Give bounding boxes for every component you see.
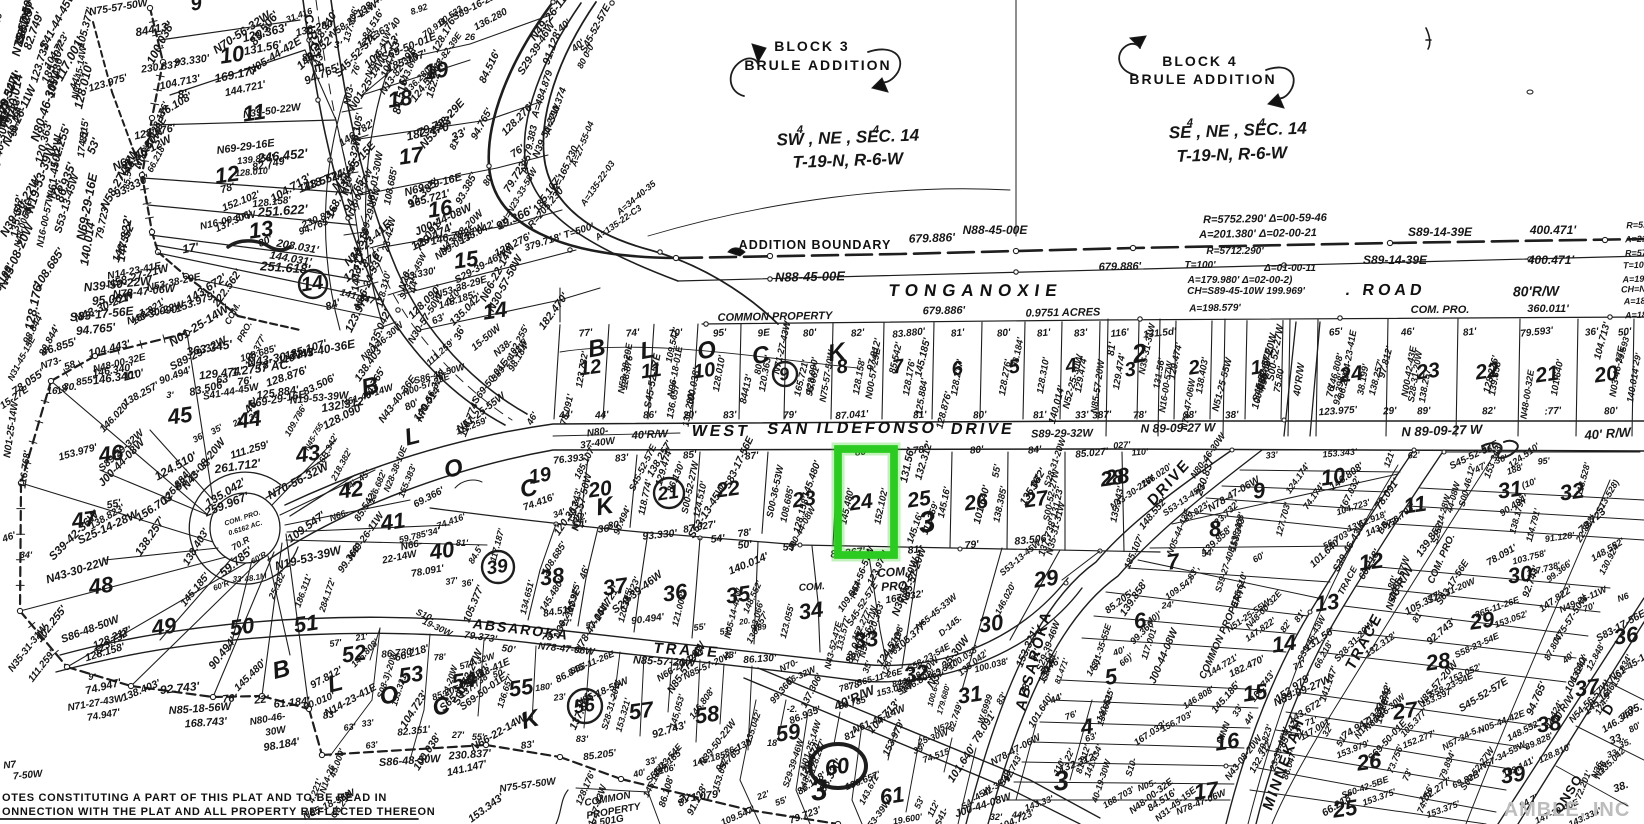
svg-text:4: 4 bbox=[1258, 117, 1266, 129]
svg-text:83': 83' bbox=[723, 410, 738, 422]
svg-text:COMMON PROPERTY: COMMON PROPERTY bbox=[718, 310, 835, 324]
svg-text:T-19-N, R-6-W: T-19-N, R-6-W bbox=[1176, 143, 1289, 166]
svg-text:33': 33' bbox=[1075, 410, 1090, 422]
svg-text:24': 24' bbox=[1160, 599, 1175, 611]
svg-text:CH=N7: CH=N7 bbox=[1621, 283, 1644, 294]
svg-text:82': 82' bbox=[850, 327, 865, 339]
svg-text:22': 22' bbox=[253, 693, 270, 707]
svg-text::77': :77' bbox=[1544, 405, 1562, 417]
svg-text:49: 49 bbox=[149, 612, 178, 640]
svg-text:BRULE ADDITION: BRULE ADDITION bbox=[744, 57, 891, 73]
svg-text:80': 80' bbox=[802, 327, 817, 339]
svg-text:81': 81' bbox=[1462, 326, 1477, 338]
svg-text:95': 95' bbox=[1537, 455, 1551, 466]
svg-text:83': 83' bbox=[1073, 327, 1088, 339]
svg-text:83': 83' bbox=[614, 452, 629, 464]
svg-text:9E: 9E bbox=[757, 327, 771, 339]
svg-text:A=201.380' Δ=02-00-21: A=201.380' Δ=02-00-21 bbox=[1198, 227, 1317, 241]
svg-text:79': 79' bbox=[964, 538, 980, 551]
svg-text:T=100: T=100 bbox=[1623, 260, 1644, 271]
svg-text:BLOCK 3: BLOCK 3 bbox=[774, 38, 849, 54]
svg-text:81': 81' bbox=[1106, 341, 1119, 357]
svg-text:84': 84' bbox=[1027, 444, 1042, 456]
svg-text:400.471': 400.471' bbox=[1529, 223, 1577, 237]
svg-text:85': 85' bbox=[682, 449, 697, 461]
svg-text:N 89-09-27 W: N 89-09-27 W bbox=[1401, 422, 1484, 440]
svg-text:SAN: SAN bbox=[766, 420, 812, 438]
svg-text:R=5752.290' Δ=00-59-46: R=5752.290' Δ=00-59-46 bbox=[1203, 212, 1328, 226]
svg-text:A=21: A=21 bbox=[1624, 234, 1644, 245]
svg-text:400.471': 400.471' bbox=[1527, 253, 1575, 267]
svg-text:110': 110' bbox=[1131, 446, 1149, 457]
svg-text:N88-45-00E: N88-45-00E bbox=[775, 268, 846, 284]
svg-text:R=5.: R=5. bbox=[1626, 220, 1644, 231]
svg-text:55': 55' bbox=[693, 621, 707, 633]
svg-text:28: 28 bbox=[1102, 462, 1131, 490]
svg-text:COM. PRO.: COM. PRO. bbox=[1411, 304, 1470, 316]
svg-text:3': 3' bbox=[166, 390, 174, 400]
svg-text:BRULE ADDITION: BRULE ADDITION bbox=[1129, 71, 1276, 87]
svg-text:N88-45-00E: N88-45-00E bbox=[963, 223, 1029, 237]
svg-text:80': 80' bbox=[753, 360, 765, 375]
svg-text:4: 4 bbox=[872, 124, 880, 136]
svg-text:360.011': 360.011' bbox=[1527, 303, 1569, 315]
svg-text:BLOCK 4: BLOCK 4 bbox=[1162, 53, 1237, 69]
svg-text:81': 81' bbox=[950, 327, 965, 339]
svg-text:WEST: WEST bbox=[690, 422, 751, 440]
svg-text:29': 29' bbox=[1382, 406, 1398, 418]
svg-text:34': 34' bbox=[20, 550, 33, 560]
svg-text:26: 26 bbox=[464, 32, 476, 42]
svg-text:ILDEFONSO: ILDEFONSO bbox=[815, 419, 938, 437]
svg-text:S89-14-39E: S89-14-39E bbox=[1408, 225, 1473, 239]
svg-text:27': 27' bbox=[451, 730, 465, 740]
svg-text:4: 4 bbox=[1186, 117, 1194, 129]
svg-text:9': 9' bbox=[88, 672, 96, 682]
svg-text:COM.: COM. bbox=[798, 581, 825, 594]
svg-text:95': 95' bbox=[712, 327, 727, 339]
svg-text:78': 78' bbox=[1133, 410, 1148, 422]
svg-text:80': 80' bbox=[1604, 406, 1619, 418]
svg-text:81': 81' bbox=[1033, 410, 1048, 422]
svg-text:20.: 20. bbox=[738, 616, 751, 627]
svg-text:83': 83' bbox=[520, 739, 536, 752]
svg-text:34: 34 bbox=[797, 596, 825, 624]
svg-text:83': 83' bbox=[576, 734, 589, 744]
svg-text:48: 48 bbox=[86, 571, 115, 599]
svg-text:A=198.579': A=198.579' bbox=[1188, 303, 1241, 315]
svg-text:679.886': 679.886' bbox=[1099, 261, 1142, 274]
svg-text:78': 78' bbox=[433, 651, 447, 662]
svg-text:65': 65' bbox=[1328, 326, 1343, 338]
svg-text:74': 74' bbox=[625, 327, 640, 339]
svg-text:33': 33' bbox=[233, 575, 245, 584]
svg-text:80'R/W: 80'R/W bbox=[1513, 283, 1561, 300]
svg-text:82': 82' bbox=[1482, 406, 1497, 418]
svg-text:80': 80' bbox=[996, 327, 1011, 339]
svg-text:40: 40 bbox=[427, 536, 456, 564]
svg-text:Δ=01-00-11: Δ=01-00-11 bbox=[1263, 263, 1316, 274]
svg-text:TONGANOXIE: TONGANOXIE bbox=[887, 281, 1064, 300]
svg-text:ADDITION BOUNDARY: ADDITION BOUNDARY bbox=[739, 238, 892, 252]
svg-text:38': 38' bbox=[1225, 410, 1240, 422]
svg-text:63': 63' bbox=[343, 721, 357, 733]
svg-text:A=18: A=18 bbox=[1624, 310, 1644, 321]
svg-text:50': 50' bbox=[501, 643, 517, 656]
svg-text:DRIVE: DRIVE bbox=[949, 420, 1016, 438]
svg-text:50': 50' bbox=[737, 538, 753, 551]
svg-text:54': 54' bbox=[710, 532, 726, 545]
svg-text:33': 33' bbox=[361, 717, 375, 729]
svg-text:R=5712.290': R=5712.290' bbox=[1206, 246, 1264, 257]
svg-text:81': 81' bbox=[1036, 327, 1051, 339]
svg-text:027': 027' bbox=[1113, 439, 1132, 450]
svg-text:81': 81' bbox=[456, 538, 469, 548]
svg-text:46': 46' bbox=[1399, 326, 1415, 339]
svg-text:A=18.: A=18. bbox=[1623, 296, 1644, 307]
svg-text:0.9751 ACRES: 0.9751 ACRES bbox=[1025, 306, 1101, 319]
svg-text:AMBLE, INC: AMBLE, INC bbox=[1504, 799, 1631, 821]
svg-text:ONNECTION WITH THE PLAT AND AL: ONNECTION WITH THE PLAT AND ALL PROPERTY… bbox=[2, 806, 435, 818]
svg-text:T=100': T=100' bbox=[1184, 260, 1216, 271]
svg-text:679.886': 679.886' bbox=[923, 305, 966, 318]
svg-text:. ROAD: . ROAD bbox=[1344, 281, 1426, 299]
svg-text:679.886': 679.886' bbox=[909, 230, 957, 246]
svg-text:51': 51' bbox=[719, 625, 733, 637]
svg-text:A=179.980' Δ=02-00-2): A=179.980' Δ=02-00-2) bbox=[1187, 275, 1293, 286]
svg-text:R=57: R=57 bbox=[1625, 248, 1644, 259]
svg-text:77': 77' bbox=[578, 327, 593, 339]
svg-text:CH=S89-45-10W 199.969': CH=S89-45-10W 199.969' bbox=[1187, 286, 1305, 297]
svg-text:44': 44' bbox=[594, 410, 610, 422]
svg-text:18: 18 bbox=[767, 738, 777, 748]
svg-text:63': 63' bbox=[365, 739, 379, 751]
svg-text:T-19-N, R-6-W: T-19-N, R-6-W bbox=[792, 149, 905, 172]
svg-text:50: 50 bbox=[228, 612, 256, 640]
svg-text:86.130': 86.130' bbox=[743, 653, 777, 666]
svg-text:89': 89' bbox=[1417, 406, 1432, 418]
svg-text:45: 45 bbox=[165, 401, 194, 429]
svg-text:S89-14-39E: S89-14-39E bbox=[1363, 253, 1428, 267]
svg-text:23': 23' bbox=[552, 691, 567, 703]
svg-text:12: 12 bbox=[1357, 547, 1385, 575]
svg-text:80': 80' bbox=[969, 444, 984, 456]
svg-text:51: 51 bbox=[292, 609, 320, 637]
svg-text:N7: N7 bbox=[3, 759, 17, 771]
svg-text:40'R/W: 40'R/W bbox=[630, 428, 669, 442]
svg-text:86': 86' bbox=[643, 410, 658, 422]
svg-text:29: 29 bbox=[1031, 564, 1060, 592]
svg-text:116': 116' bbox=[1110, 327, 1130, 340]
svg-text:4: 4 bbox=[796, 124, 804, 136]
svg-text:33': 33' bbox=[1265, 449, 1279, 460]
svg-text:63': 63' bbox=[216, 373, 232, 386]
